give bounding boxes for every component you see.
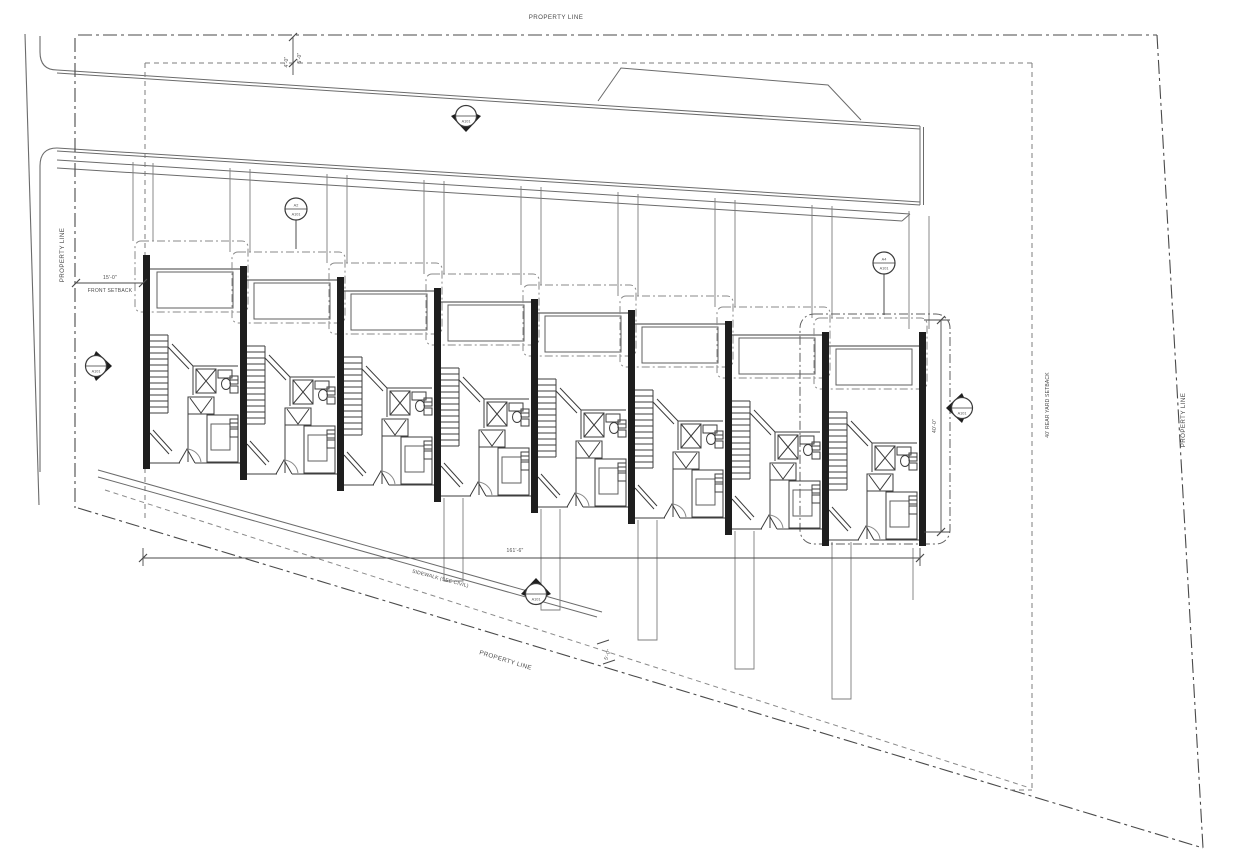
svg-text:A2: A2 bbox=[294, 204, 299, 208]
site-plan-page: 15'-0" FRONT SETBACK 161'-6" 40'-0" 4'-0… bbox=[0, 0, 1241, 856]
dimension-overall-width bbox=[139, 548, 924, 566]
callout-marker-a2: A2 A101 bbox=[285, 198, 307, 249]
dimension-top-offset bbox=[289, 33, 297, 75]
top-offset-dim-a: 4'-0" bbox=[284, 57, 290, 68]
svg-text:A101: A101 bbox=[92, 370, 101, 374]
townhouse-unit bbox=[426, 274, 539, 502]
road-top bbox=[57, 68, 924, 221]
svg-text:A4: A4 bbox=[882, 258, 887, 262]
elevation-marker-left: A101 bbox=[86, 351, 113, 381]
townhouse-unit bbox=[620, 296, 733, 524]
site-plan-canvas: 15'-0" FRONT SETBACK 161'-6" 40'-0" 4'-0… bbox=[0, 0, 1241, 856]
property-line-bottom-label: PROPERTY LINE bbox=[478, 649, 532, 672]
svg-text:A101: A101 bbox=[292, 213, 301, 217]
townhouse-unit bbox=[135, 241, 248, 469]
svg-text:A101: A101 bbox=[532, 598, 541, 602]
property-line-bottom-edge bbox=[78, 508, 1203, 848]
svg-text:A101: A101 bbox=[880, 267, 889, 271]
svg-text:A101: A101 bbox=[958, 412, 967, 416]
front-setback-label: FRONT SETBACK bbox=[88, 288, 133, 294]
setback-boundary bbox=[145, 63, 1032, 790]
elevation-marker-bottom: A101 bbox=[521, 578, 551, 605]
property-line-top-label: PROPERTY LINE bbox=[529, 14, 584, 21]
townhouse-unit bbox=[814, 318, 927, 546]
end-party-wall bbox=[919, 332, 926, 546]
top-offset-dim-b: 5'-0" bbox=[297, 53, 303, 64]
property-line-right-label: PROPERTY LINE bbox=[1180, 393, 1187, 448]
townhouse-unit bbox=[329, 263, 442, 491]
townhouse-unit bbox=[523, 285, 636, 513]
section-marker-top: A101 bbox=[451, 106, 481, 133]
street-left bbox=[25, 34, 57, 505]
driveway-apron bbox=[598, 68, 861, 120]
rear-setback-label: 40' REAR YARD SETBACK bbox=[1045, 372, 1051, 438]
townhouse-unit bbox=[232, 252, 345, 480]
overall-width-dim-label: 161'-6" bbox=[507, 548, 524, 554]
front-setback-dim-label: 15'-0" bbox=[103, 275, 117, 281]
walk-offset-dim-label: 5'-0" bbox=[604, 649, 613, 661]
lot-lines-rear bbox=[444, 498, 913, 699]
townhouse-unit bbox=[717, 307, 830, 535]
svg-text:A101: A101 bbox=[462, 120, 471, 124]
unit-depth-dim-label: 40'-0" bbox=[932, 419, 938, 433]
callout-marker-a4: A4 A101 bbox=[873, 252, 895, 315]
property-line-left-label: PROPERTY LINE bbox=[59, 228, 66, 283]
townhouse-row bbox=[135, 241, 927, 546]
